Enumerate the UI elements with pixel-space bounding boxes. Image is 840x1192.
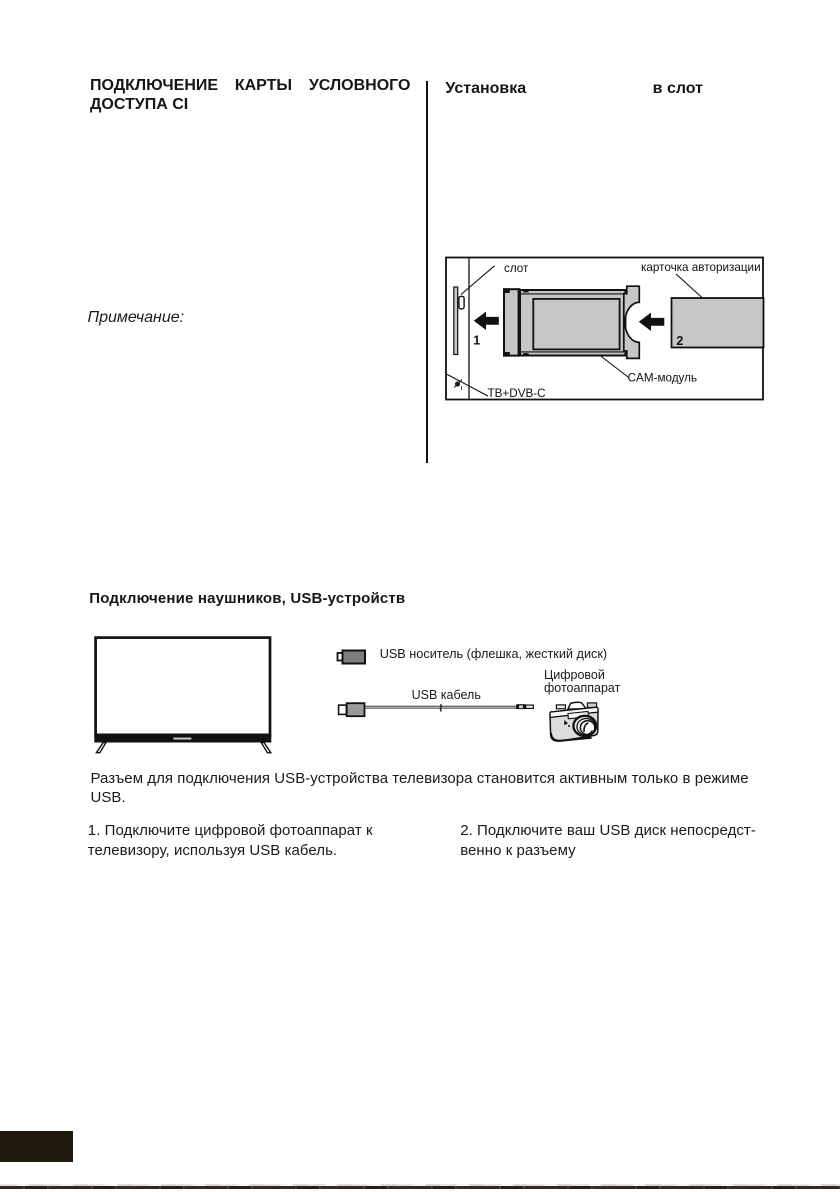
svg-text:CAM-модуль: CAM-модуль — [628, 371, 697, 384]
svg-text:слот: слот — [504, 262, 529, 275]
svg-text:карточка авторизации: карточка авторизации — [641, 261, 761, 274]
svg-text:2: 2 — [676, 334, 683, 348]
svg-text:1: 1 — [473, 333, 480, 347]
svg-text:ТВ+DVB-C: ТВ+DVB-C — [488, 387, 546, 400]
